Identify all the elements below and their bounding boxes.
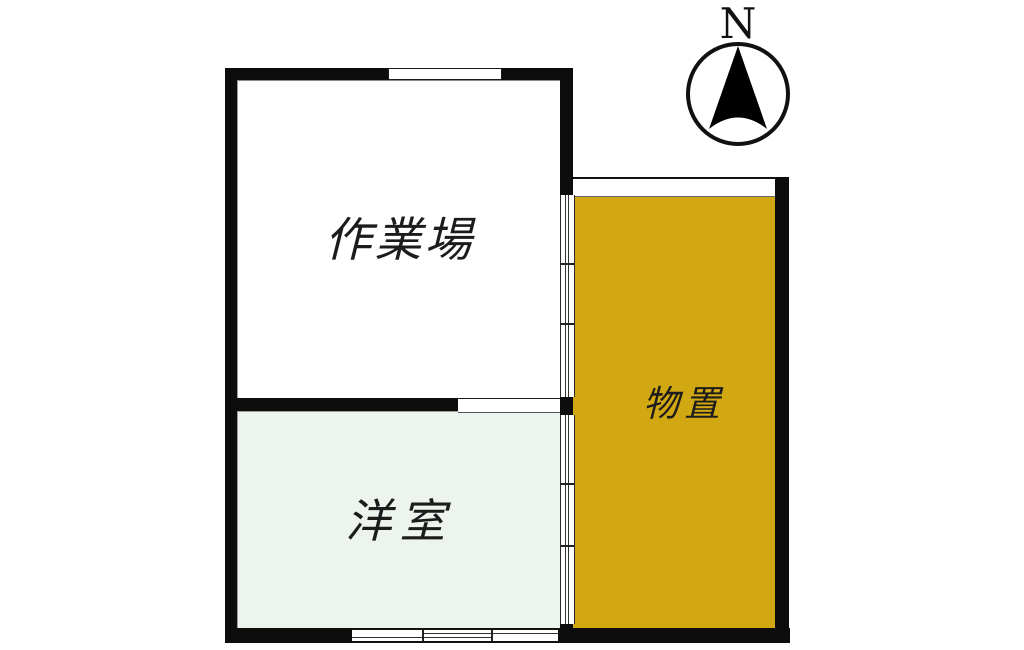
wall-left xyxy=(225,68,237,643)
opening-storage-top xyxy=(573,177,775,197)
window-western-bottom xyxy=(352,628,558,643)
wall-bottom-right-segment xyxy=(558,628,790,643)
window-western-bottom-mullion-2 xyxy=(491,630,493,641)
sliding-door-upper-tick-2 xyxy=(561,323,574,325)
sliding-door-upper-line-1 xyxy=(565,195,566,397)
sliding-door-lower-tick-1 xyxy=(561,483,574,485)
compass-north-arrow-icon xyxy=(709,46,767,129)
window-western-bottom-mullion-1 xyxy=(422,630,424,641)
window-workshop-top xyxy=(388,68,502,80)
wall-top-left-segment xyxy=(225,68,388,80)
room-storage-label: 物置 xyxy=(643,387,725,423)
room-workshop: 作業場 xyxy=(237,80,562,400)
window-western-bottom-rail-1 xyxy=(422,633,558,634)
wall-divider-column-mid xyxy=(560,397,573,415)
sliding-door-lower-line-2 xyxy=(568,415,569,624)
room-western: 洋室 xyxy=(237,411,562,630)
sliding-door-lower-tick-2 xyxy=(561,545,574,547)
room-western-label: 洋室 xyxy=(346,498,454,544)
opening-middle-doorway xyxy=(458,398,560,413)
sliding-door-lower xyxy=(560,415,575,624)
wall-bottom-left-segment xyxy=(225,628,352,643)
room-workshop-label: 作業場 xyxy=(325,217,475,264)
compass: N xyxy=(682,2,794,154)
compass-north-label: N xyxy=(720,2,757,48)
floor-plan: 作業場 洋室 物置 N xyxy=(0,0,1024,650)
wall-middle-horizontal xyxy=(225,398,458,411)
sliding-door-upper-line-2 xyxy=(568,195,569,397)
wall-divider-column-top xyxy=(560,68,573,195)
sliding-door-upper-tick-1 xyxy=(561,263,574,265)
sliding-door-upper xyxy=(560,195,575,397)
room-storage: 物置 xyxy=(573,194,775,628)
sliding-door-lower-line-1 xyxy=(565,415,566,624)
wall-storage-right xyxy=(775,177,789,643)
